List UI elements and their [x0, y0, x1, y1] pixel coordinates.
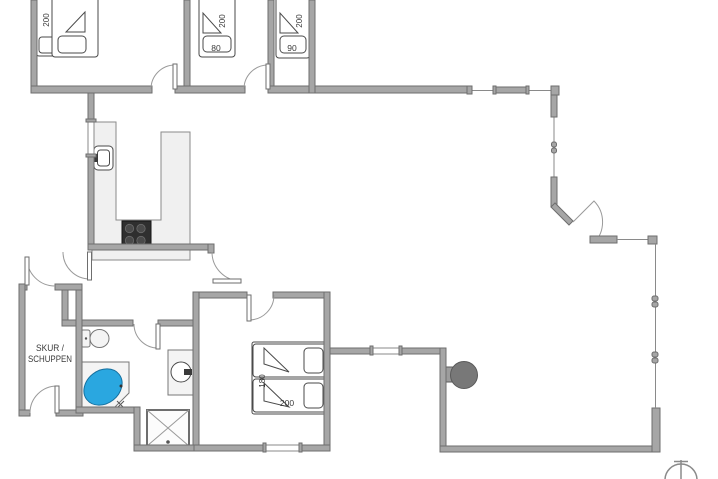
toilet — [81, 330, 109, 348]
bed-width-label: 180 — [258, 374, 267, 388]
door-leaf — [266, 64, 270, 89]
bed-length-label: 200 — [218, 14, 227, 28]
door-leaf — [88, 252, 92, 280]
bed-length-label: 200 — [295, 14, 304, 28]
floor-plan: 200 200 80 200 90 180 200 SKUR / SCHUPPE… — [0, 0, 718, 479]
basin-tap-icon — [184, 369, 192, 375]
door-leaf — [247, 295, 251, 321]
pillow — [304, 383, 323, 408]
corner-bathtub — [77, 361, 130, 412]
sink — [93, 146, 113, 170]
shed-label-line1: SKUR / — [36, 343, 64, 353]
bed-length-label: 200 — [280, 398, 294, 408]
pillow — [58, 36, 86, 53]
bed-width-label: 80 — [211, 43, 221, 53]
kitchen-counter — [92, 122, 190, 260]
floor-plan-svg: 200 200 80 200 90 180 200 SKUR / SCHUPPE… — [0, 0, 718, 479]
bed-length-label: 200 — [42, 13, 51, 27]
bed-width-label: 90 — [287, 43, 297, 53]
door-leaf — [25, 257, 29, 285]
corner-wall — [551, 203, 573, 225]
north-arrow — [665, 460, 697, 479]
door-leaf — [213, 279, 241, 283]
door-leaf — [156, 324, 160, 349]
grill — [443, 362, 478, 389]
door-leaf — [55, 386, 59, 413]
windows — [86, 119, 402, 452]
washbasin — [168, 350, 193, 395]
drain-icon — [166, 440, 170, 444]
door-leaf — [173, 64, 177, 89]
bed-top-left-room — [36, 0, 98, 57]
pillow — [304, 348, 323, 373]
shed-label-line2: SCHUPPEN — [28, 354, 72, 364]
terrace-railing — [467, 86, 658, 408]
shower — [147, 410, 189, 446]
